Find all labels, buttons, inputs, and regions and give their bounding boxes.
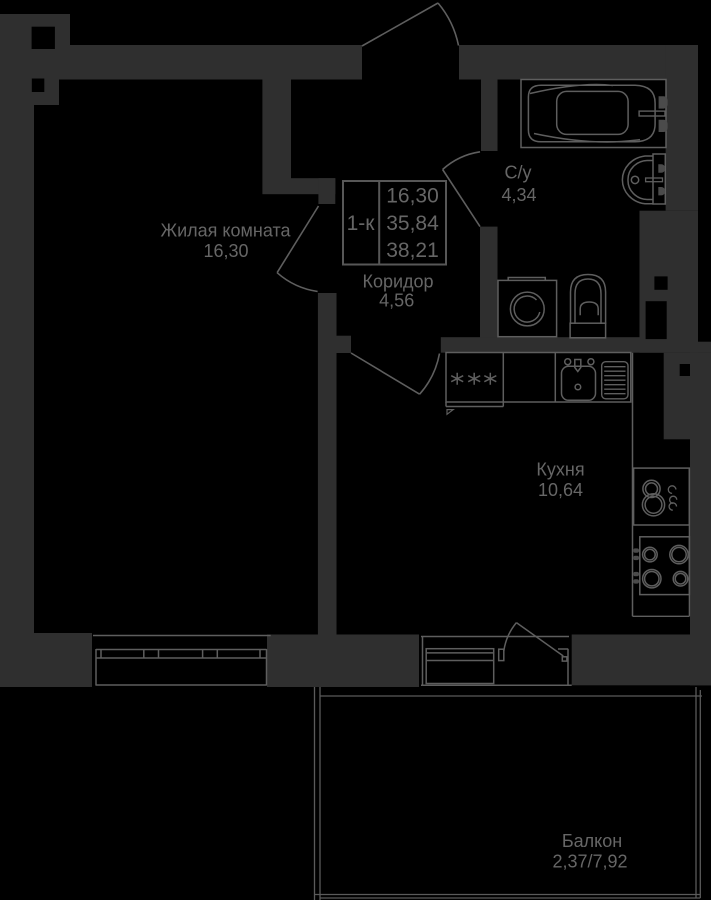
svg-text:1-к: 1-к <box>347 212 376 235</box>
svg-text:16,30: 16,30 <box>203 241 248 261</box>
svg-text:Балкон: Балкон <box>562 831 622 851</box>
svg-text:Кухня: Кухня <box>536 460 584 480</box>
svg-text:16,30: 16,30 <box>386 185 439 208</box>
svg-text:Коридор: Коридор <box>362 272 433 292</box>
svg-text:Жилая комната: Жилая комната <box>160 221 291 241</box>
svg-text:2,37/7,92: 2,37/7,92 <box>552 852 627 872</box>
svg-text:4,56: 4,56 <box>379 290 414 310</box>
svg-text:35,84: 35,84 <box>386 212 439 235</box>
svg-text:10,64: 10,64 <box>538 480 583 500</box>
svg-text:4,34: 4,34 <box>501 185 536 205</box>
svg-text:38,21: 38,21 <box>386 239 439 262</box>
svg-text:С/у: С/у <box>505 163 532 183</box>
